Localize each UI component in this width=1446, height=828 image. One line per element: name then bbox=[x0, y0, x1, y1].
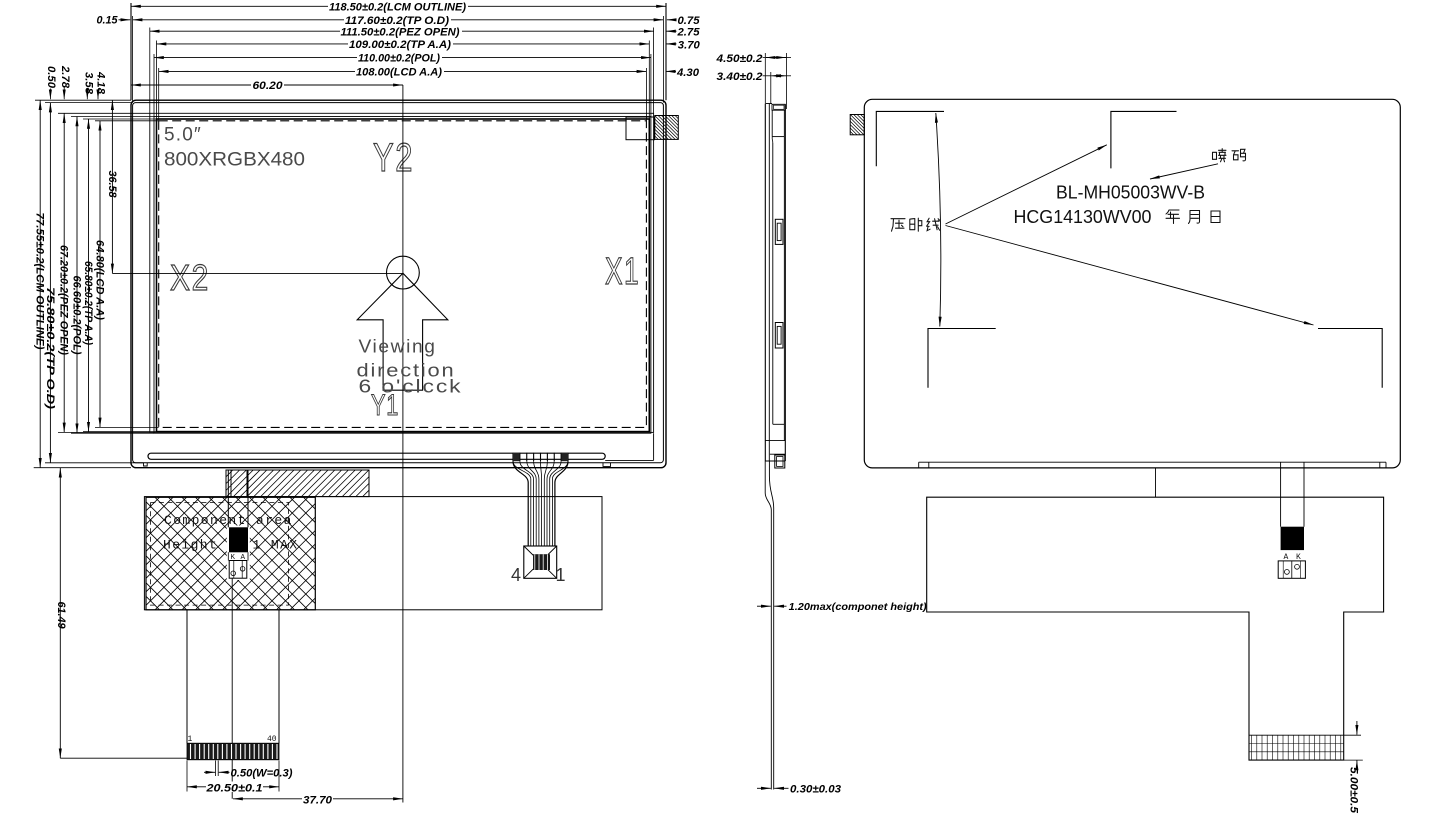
svg-text:3.70: 3.70 bbox=[678, 39, 701, 51]
svg-text:61.49: 61.49 bbox=[55, 602, 67, 630]
svg-text:108.00(LCD A.A): 108.00(LCD A.A) bbox=[356, 67, 442, 79]
svg-text:36.58: 36.58 bbox=[106, 171, 118, 199]
svg-text:117.60±0.2(TP O.D): 117.60±0.2(TP O.D) bbox=[345, 15, 449, 27]
svg-text:0.30±0.03: 0.30±0.03 bbox=[790, 783, 841, 795]
svg-text:2.78: 2.78 bbox=[59, 65, 71, 89]
svg-text:0.50(W=0.3): 0.50(W=0.3) bbox=[231, 768, 293, 780]
svg-text:4.30: 4.30 bbox=[676, 67, 700, 79]
svg-text:0.50: 0.50 bbox=[45, 66, 57, 89]
svg-text:110.00±0.2(POL): 110.00±0.2(POL) bbox=[358, 53, 440, 65]
svg-text:1: 1 bbox=[188, 735, 193, 744]
svg-text:1: 1 bbox=[556, 565, 566, 585]
svg-text:109.00±0.2(TP A.A): 109.00±0.2(TP A.A) bbox=[349, 39, 451, 51]
svg-text:HCG14130WV00: HCG14130WV00 bbox=[1014, 206, 1152, 227]
svg-text:5.00±0.5: 5.00±0.5 bbox=[1348, 767, 1360, 814]
svg-text:40: 40 bbox=[267, 735, 277, 744]
svg-text:37.70: 37.70 bbox=[303, 794, 333, 806]
svg-text:Y2: Y2 bbox=[373, 136, 414, 180]
svg-text:1 MAX: 1 MAX bbox=[253, 538, 299, 553]
svg-text:800XRGBX480: 800XRGBX480 bbox=[164, 150, 305, 171]
svg-text:2.75: 2.75 bbox=[676, 27, 700, 39]
svg-text:67.20±0.2(PEZ OPEN): 67.20±0.2(PEZ OPEN) bbox=[58, 245, 70, 355]
svg-text:4.18: 4.18 bbox=[94, 71, 106, 95]
svg-text:77.55±0.2(LCM OUTLINE): 77.55±0.2(LCM OUTLINE) bbox=[34, 213, 46, 350]
svg-text:4.50±0.2: 4.50±0.2 bbox=[715, 53, 762, 65]
svg-text:20.50±0.1: 20.50±0.1 bbox=[205, 782, 262, 794]
svg-text:66.60±0.2(POL): 66.60±0.2(POL) bbox=[71, 276, 83, 355]
svg-text:60.20: 60.20 bbox=[253, 80, 284, 92]
svg-text:X1: X1 bbox=[605, 251, 640, 293]
svg-text:BL-MH05003WV-B: BL-MH05003WV-B bbox=[1056, 182, 1205, 203]
svg-text:3.40±0.2: 3.40±0.2 bbox=[717, 71, 763, 83]
svg-text:0.15: 0.15 bbox=[97, 15, 119, 27]
svg-text:Viewing: Viewing bbox=[359, 337, 437, 357]
svg-text:75.80±0.2(TP O.D): 75.80±0.2(TP O.D) bbox=[44, 287, 56, 409]
svg-text:Y1: Y1 bbox=[371, 389, 399, 422]
svg-text:X2: X2 bbox=[170, 257, 210, 298]
svg-text:0.75: 0.75 bbox=[678, 15, 701, 27]
svg-text:4: 4 bbox=[511, 565, 521, 585]
svg-text:5.0″: 5.0″ bbox=[164, 125, 202, 146]
svg-text:64.80(LCD A.A): 64.80(LCD A.A) bbox=[94, 240, 106, 320]
svg-text:65.80±0.2(TP A.A): 65.80±0.2(TP A.A) bbox=[82, 261, 94, 345]
svg-text:111.50±0.2(PEZ OPEN): 111.50±0.2(PEZ OPEN) bbox=[341, 26, 460, 38]
svg-text:Height: Height bbox=[163, 538, 218, 553]
svg-text:1.20max(componet height): 1.20max(componet height) bbox=[789, 601, 928, 613]
svg-text:3.58: 3.58 bbox=[82, 72, 94, 95]
svg-text:118.50±0.2(LCM OUTLINE): 118.50±0.2(LCM OUTLINE) bbox=[329, 1, 466, 13]
